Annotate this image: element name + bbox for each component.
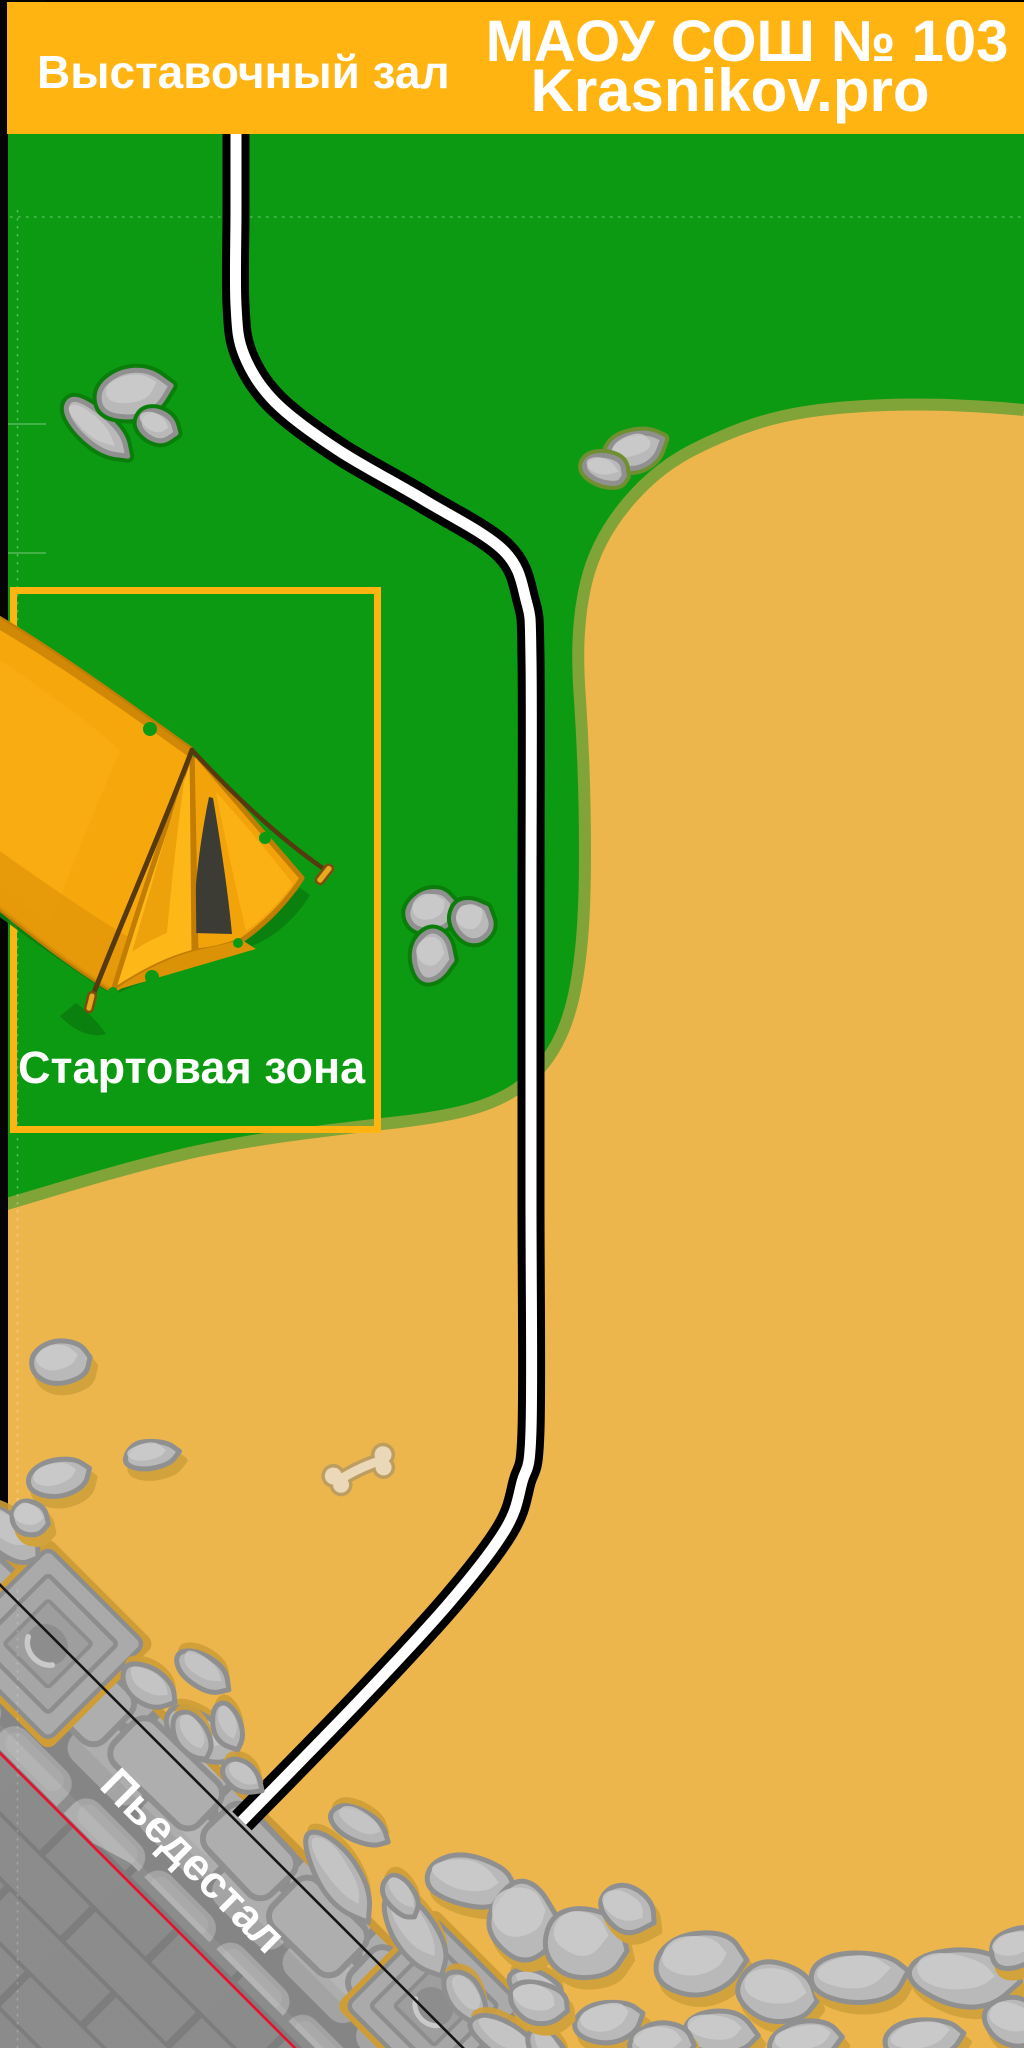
svg-text:Krasnikov.pro: Krasnikov.pro bbox=[531, 57, 930, 124]
svg-text:Выставочный зал: Выставочный зал bbox=[37, 46, 450, 98]
svg-text:Стартовая зона: Стартовая зона bbox=[18, 1042, 366, 1093]
